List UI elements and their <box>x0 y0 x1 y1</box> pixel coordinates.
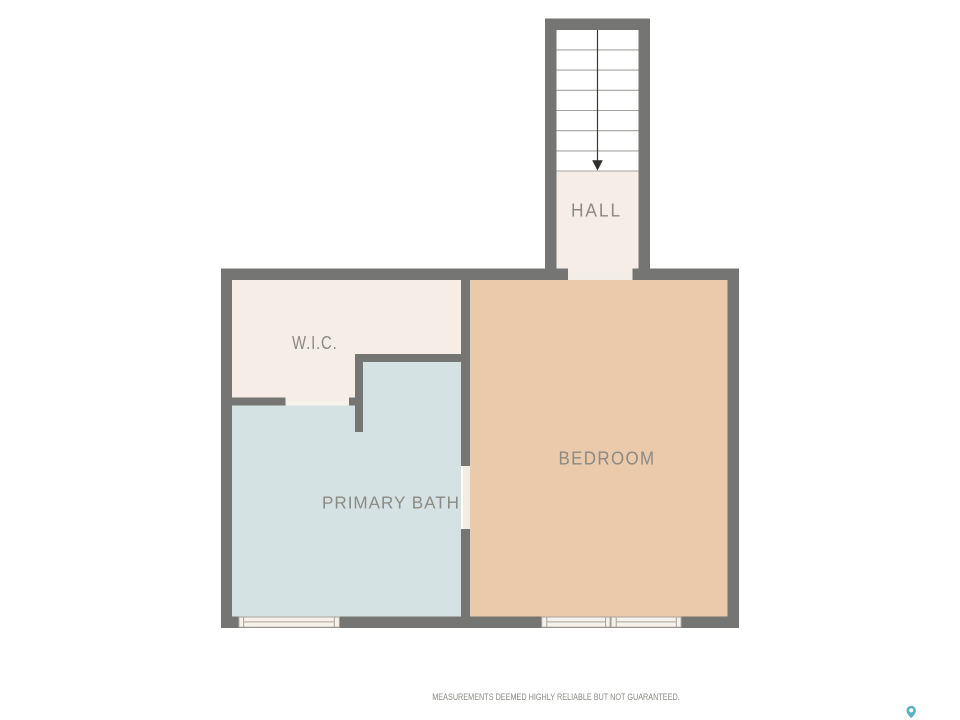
svg-text:PRIMARY BATH: PRIMARY BATH <box>322 493 460 513</box>
svg-text:BEDROOM: BEDROOM <box>559 448 656 469</box>
svg-text:W.I.C.: W.I.C. <box>292 333 338 353</box>
svg-text:MEASUREMENTS DEEMED HIGHLY REL: MEASUREMENTS DEEMED HIGHLY RELIABLE BUT … <box>432 692 680 703</box>
svg-text:HALL: HALL <box>571 201 622 221</box>
